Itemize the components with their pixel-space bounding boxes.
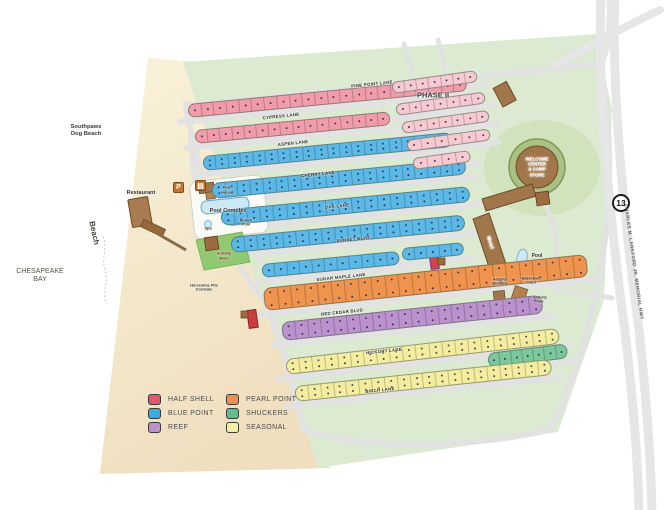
activity-barn-building: [204, 236, 219, 251]
spa-shape: [205, 221, 212, 228]
activity-pad-shape: [528, 300, 537, 309]
legend-label-seasonal: SEASONAL: [246, 424, 287, 431]
shoreline-ripple: [103, 236, 106, 304]
legend-swatch-half-shell: [148, 394, 161, 405]
legend-label-pearl-point: PEARL POINT: [246, 396, 296, 403]
legend-swatch-pearl-point: [226, 394, 239, 405]
legend-item-blue-point: BLUE POINT: [148, 408, 214, 419]
welcome-outbuilding: [535, 191, 550, 206]
legend-label-reef: REEF: [168, 424, 188, 431]
legend-swatch-seasonal: [226, 422, 239, 433]
legend-swatch-shuckers: [226, 408, 239, 419]
legend-label-blue-point: BLUE POINT: [168, 410, 214, 417]
legend: HALF SHELLBLUE POINTREEFPEARL POINTSHUCK…: [148, 394, 368, 444]
pool-house-annex: [206, 191, 216, 199]
legend-swatch-reef: [148, 422, 161, 433]
legend-item-seasonal: SEASONAL: [226, 422, 287, 433]
legend-label-shuckers: SHUCKERS: [246, 410, 288, 417]
legend-item-reef: REEF: [148, 422, 188, 433]
legend-label-half-shell: HALF SHELL: [168, 396, 214, 403]
welcome-center-building: [516, 146, 558, 188]
legend-item-half-shell: HALF SHELL: [148, 394, 214, 405]
legend-swatch-blue-point: [148, 408, 161, 419]
splash-pool-shape: [228, 215, 246, 226]
campground-map: P▤ 13 CHARLES M. LANKFORD JR. MEMORIAL H…: [0, 0, 672, 510]
legend-item-shuckers: SHUCKERS: [226, 408, 288, 419]
legend-item-pearl-point: PEARL POINT: [226, 394, 296, 405]
activity-building-shape: [493, 290, 505, 305]
